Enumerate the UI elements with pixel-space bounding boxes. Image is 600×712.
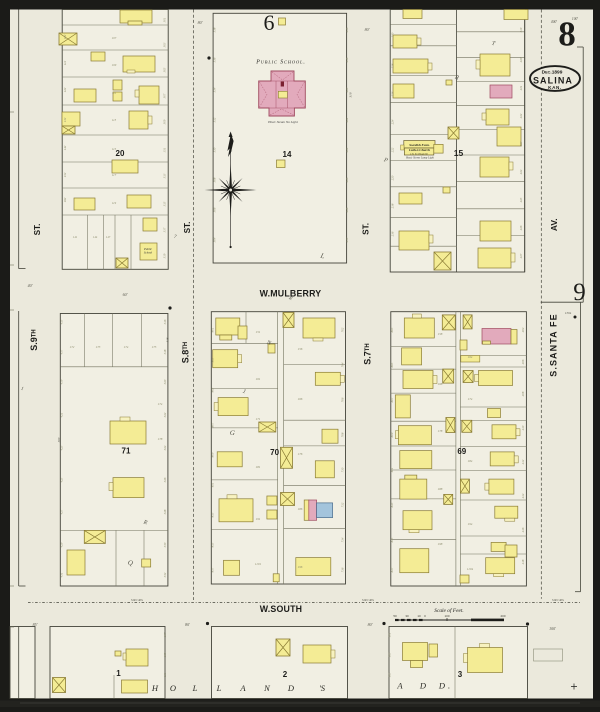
svg-text:3: 3 [458,670,463,679]
svg-text:532: 532 [163,572,167,577]
svg-text:141: 141 [73,235,78,239]
svg-text:1: 1 [116,669,121,678]
svg-text:60': 60' [123,292,128,297]
svg-text:809: 809 [211,452,215,457]
svg-text:S'R.CRG: S'R.CRG [362,598,375,602]
svg-text:528: 528 [163,509,167,514]
svg-text:807: 807 [211,422,215,427]
svg-text:Heat: Steam No Light: Heat: Steam No Light [267,120,299,124]
svg-text:111: 111 [163,672,167,677]
svg-text:15: 15 [454,148,464,158]
svg-text:714: 714 [341,537,345,542]
svg-text:427: 427 [60,509,64,514]
svg-text:415: 415 [60,319,64,324]
svg-text:811: 811 [390,467,394,472]
svg-text:ST.: ST. [361,223,370,235]
svg-text:224: 224 [391,119,395,124]
svg-text:312: 312 [213,117,217,122]
svg-text:1101: 1101 [255,562,262,566]
svg-text:152: 152 [63,172,67,177]
svg-text:W.SOUTH: W.SOUTH [260,604,302,614]
svg-text:220: 220 [519,57,523,62]
svg-text:L: L [216,683,222,693]
svg-text:710: 710 [341,467,345,472]
svg-text:50: 50 [393,614,397,618]
svg-text:14: 14 [283,150,292,159]
svg-text:314: 314 [213,87,217,92]
svg-text:813: 813 [390,502,394,507]
svg-text:A: A [396,681,403,691]
svg-text:ST.: ST. [33,224,42,236]
svg-text:526: 526 [163,477,167,482]
svg-text:.: . [448,681,450,691]
svg-text:218: 218 [521,559,525,564]
svg-text:530: 530 [163,542,167,547]
svg-text:805: 805 [390,362,394,367]
svg-text:417: 417 [60,349,64,354]
svg-text:162: 162 [63,197,67,202]
svg-text:224: 224 [519,169,523,174]
svg-text:311: 311 [163,147,167,152]
svg-text:307: 307 [163,93,167,98]
svg-text:171: 171 [256,417,261,421]
svg-text:813: 813 [211,512,215,517]
svg-text:208: 208 [521,391,525,396]
svg-text:122: 122 [63,87,67,92]
svg-text:184: 184 [468,459,473,463]
svg-text:226: 226 [391,91,395,96]
svg-text:O: O [170,683,176,693]
svg-text:309: 309 [163,119,167,124]
svg-text:218: 218 [345,57,349,62]
svg-text:S'R.CRG: S'R.CRG [552,598,565,602]
svg-text:2: 2 [283,670,288,679]
svg-text:210: 210 [521,425,525,430]
svg-text:100': 100' [572,17,578,21]
svg-text:147: 147 [106,235,111,239]
svg-text:221: 221 [519,85,523,90]
svg-text:704: 704 [341,362,345,367]
svg-text:144: 144 [93,235,98,239]
svg-text:712: 712 [341,502,345,507]
svg-text:318: 318 [213,27,217,32]
svg-text:101: 101 [388,632,392,637]
svg-text:518: 518 [163,349,167,354]
svg-text:175: 175 [152,345,157,349]
svg-text:400': 400' [551,20,557,24]
svg-text:174: 174 [158,402,163,406]
svg-text:109: 109 [163,652,167,657]
svg-text:212: 212 [521,459,525,464]
svg-text:172: 172 [70,345,75,349]
svg-text:227: 227 [519,253,523,258]
svg-text:305: 305 [163,67,167,72]
svg-text:85': 85' [33,622,38,627]
svg-text:318: 318 [349,92,353,97]
svg-text:D: D [419,681,427,691]
svg-text:222: 222 [391,147,395,152]
svg-text:1394: 1394 [565,311,572,315]
svg-text:ST.: ST. [183,222,192,234]
svg-text:2 St. B. Shingle Rf.: 2 St. B. Shingle Rf. [410,153,428,156]
svg-text:419: 419 [60,379,64,384]
svg-text:218: 218 [391,203,395,208]
svg-text:D: D [438,681,446,691]
svg-text:164: 164 [468,355,473,359]
svg-text:111: 111 [112,91,117,95]
svg-text:317: 317 [163,227,167,232]
svg-text:30: 30 [405,614,409,618]
svg-text:421: 421 [60,412,64,417]
svg-text:429: 429 [60,542,64,547]
svg-text:304: 304 [213,237,217,242]
svg-text:520: 520 [163,379,167,384]
svg-text:105: 105 [388,672,392,677]
svg-text:174: 174 [124,345,129,349]
svg-text:100': 100' [549,626,556,631]
svg-text:100: 100 [444,614,449,618]
svg-text:109: 109 [112,63,117,67]
svg-text:522: 522 [163,412,167,417]
svg-text:226: 226 [345,177,349,182]
svg-text:313: 313 [163,173,167,178]
svg-text:230: 230 [345,237,349,242]
svg-text:224: 224 [345,147,349,152]
svg-text:80': 80' [368,622,373,627]
svg-text:191: 191 [256,517,261,521]
svg-text:80': 80' [185,622,190,627]
svg-text:318: 318 [166,337,170,342]
svg-text:805: 805 [211,387,215,392]
svg-text:156: 156 [298,347,303,351]
svg-text:803: 803 [390,327,394,332]
svg-text:132: 132 [63,117,67,122]
svg-text:206: 206 [521,359,525,364]
svg-text:70: 70 [270,448,279,457]
svg-text:194: 194 [468,522,473,526]
svg-text:KAN.: KAN. [548,85,562,90]
svg-text:166: 166 [298,397,303,401]
svg-text:223: 223 [519,141,523,146]
svg-text:524: 524 [163,445,167,450]
svg-text:809: 809 [390,432,394,437]
svg-text:119: 119 [112,201,117,205]
svg-text:803: 803 [211,357,215,362]
svg-text:L: L [192,683,198,693]
svg-text:S.SANTA FE: S.SANTA FE [549,313,559,377]
svg-text:117: 117 [112,173,117,177]
svg-text:423: 423 [60,445,64,450]
svg-text:H: H [151,683,159,693]
svg-text:1104: 1104 [467,567,474,571]
svg-text:40': 40' [28,283,33,288]
svg-text:716: 716 [341,567,345,572]
svg-text:226: 226 [519,225,523,230]
svg-text:807: 807 [390,397,394,402]
svg-text:174: 174 [468,397,473,401]
svg-text:107: 107 [163,632,167,637]
svg-text:301: 301 [163,17,167,22]
svg-text:71: 71 [122,447,131,456]
svg-text:9: 9 [573,279,586,306]
svg-text:School: School [144,251,152,255]
svg-text:216: 216 [391,231,395,236]
svg-text:815: 815 [390,537,394,542]
svg-text:306: 306 [213,207,217,212]
svg-text:AV.: AV. [549,218,559,231]
svg-text:230: 230 [391,32,395,37]
svg-text:315: 315 [163,201,167,206]
svg-text:316: 316 [213,57,217,62]
svg-text:220: 220 [391,175,395,180]
svg-text:204: 204 [521,327,525,332]
svg-text:80': 80' [198,20,203,25]
svg-text:Swedish Evan.: Swedish Evan. [409,143,430,147]
svg-text:220: 220 [345,87,349,92]
svg-text:115: 115 [112,147,117,151]
svg-text:310: 310 [213,147,217,152]
svg-text:176: 176 [298,452,303,456]
svg-text:815: 815 [211,542,215,547]
svg-text:6: 6 [264,10,275,35]
svg-text:425: 425 [60,477,64,482]
svg-text:214: 214 [521,493,525,498]
svg-text:188: 188 [438,487,443,491]
svg-text:303: 303 [163,42,167,47]
svg-text:219: 219 [519,27,523,32]
svg-text:158: 158 [438,332,443,336]
svg-text:S'R.CRG: S'R.CRG [131,598,144,602]
svg-text:216: 216 [345,27,349,32]
svg-text:708: 708 [341,432,345,437]
svg-text:20: 20 [116,149,125,158]
svg-text:228: 228 [391,63,395,68]
svg-text:225: 225 [519,197,523,202]
svg-text:200: 200 [500,614,505,618]
svg-text:A: A [239,683,246,693]
svg-text:'S: 'S [319,683,326,693]
svg-text:161: 161 [256,377,261,381]
svg-text:102: 102 [63,34,67,39]
svg-text:D: D [287,683,295,693]
svg-text:198: 198 [438,542,443,546]
svg-text:222: 222 [345,117,349,122]
svg-text:817: 817 [211,567,215,572]
svg-text:300: 300 [57,437,61,442]
svg-text:173: 173 [96,345,101,349]
svg-text:103: 103 [388,652,392,657]
svg-text:319: 319 [163,253,167,258]
svg-text:811: 811 [211,482,215,487]
svg-text:142: 142 [63,145,67,150]
svg-text:706: 706 [341,397,345,402]
svg-text:196: 196 [298,565,303,569]
svg-text:186: 186 [298,507,303,511]
svg-text:113: 113 [112,118,117,122]
svg-text:516: 516 [163,319,167,324]
svg-text:178: 178 [158,437,163,441]
svg-text:178: 178 [438,429,443,433]
svg-text:801: 801 [211,327,215,332]
svg-text:69: 69 [457,447,466,456]
svg-text:817: 817 [390,567,394,572]
svg-text:80': 80' [365,27,370,32]
svg-text:Heat: Stoves Lamp Light: Heat: Stoves Lamp Light [405,157,434,160]
svg-text:168: 168 [438,382,443,386]
svg-text:10: 10 [417,614,421,618]
svg-text:181: 181 [256,465,261,469]
svg-text:222: 222 [519,113,523,118]
svg-text:228: 228 [345,207,349,212]
svg-text:216: 216 [521,527,525,532]
svg-text:308: 308 [213,177,217,182]
svg-text:Luth.n Church: Luth.n Church [408,148,430,152]
svg-text:431: 431 [60,572,64,577]
svg-text:112: 112 [63,60,67,65]
svg-text:107: 107 [112,36,117,40]
svg-text:702: 702 [341,327,345,332]
svg-text:151: 151 [256,330,261,334]
